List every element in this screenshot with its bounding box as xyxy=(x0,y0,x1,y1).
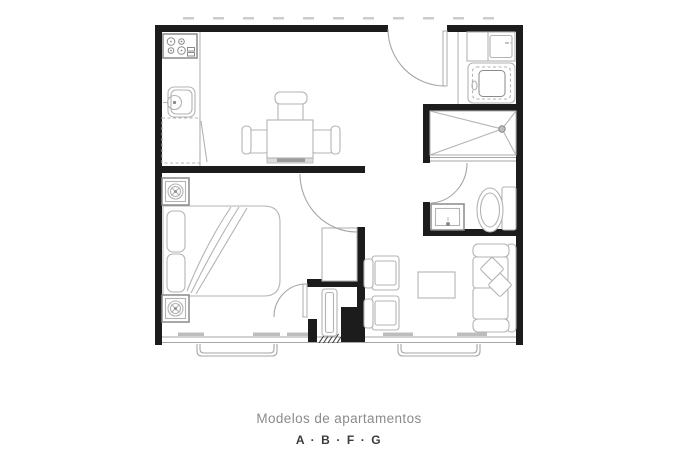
toilet xyxy=(477,187,516,232)
shelf-unit xyxy=(467,32,515,61)
bathroom-vanity xyxy=(431,204,464,230)
dining-table xyxy=(267,120,313,158)
bed xyxy=(163,206,280,296)
coffee-table xyxy=(418,272,455,298)
bathroom-door xyxy=(431,163,467,203)
nightstand-bottom xyxy=(162,295,189,322)
nightstand-top xyxy=(162,178,189,205)
shower xyxy=(430,111,516,161)
caption-models: A · B · F · G xyxy=(0,433,678,447)
bedroom-door xyxy=(274,284,307,317)
pillow xyxy=(167,254,185,292)
pillow xyxy=(167,211,185,252)
caption: Modelos de apartamentos A · B · F · G xyxy=(0,411,678,447)
floor-plan-drawing xyxy=(0,0,700,380)
armchair-bottom xyxy=(364,296,399,330)
dining-set xyxy=(242,92,340,163)
dimension-ticks xyxy=(183,17,494,20)
sofa xyxy=(473,244,516,332)
dining-chair-right xyxy=(312,126,340,154)
shower-glass xyxy=(430,158,516,162)
wardrobe xyxy=(322,228,357,281)
bedroom-hall-door xyxy=(300,174,357,232)
kitchen-sink xyxy=(163,87,195,117)
laundry-closet xyxy=(458,32,515,104)
windows xyxy=(162,333,516,343)
balcony-outlines xyxy=(197,344,480,356)
dining-chair-top xyxy=(275,92,307,123)
washer-icon xyxy=(468,63,515,103)
floor-plan-page: Modelos de apartamentos A · B · F · G xyxy=(0,0,700,466)
caption-title: Modelos de apartamentos xyxy=(0,411,678,426)
entry-door xyxy=(322,289,337,336)
kitchen-stove xyxy=(163,34,197,58)
hall-door xyxy=(388,29,447,86)
dining-chair-left xyxy=(242,126,268,154)
armchair-top xyxy=(364,256,399,290)
